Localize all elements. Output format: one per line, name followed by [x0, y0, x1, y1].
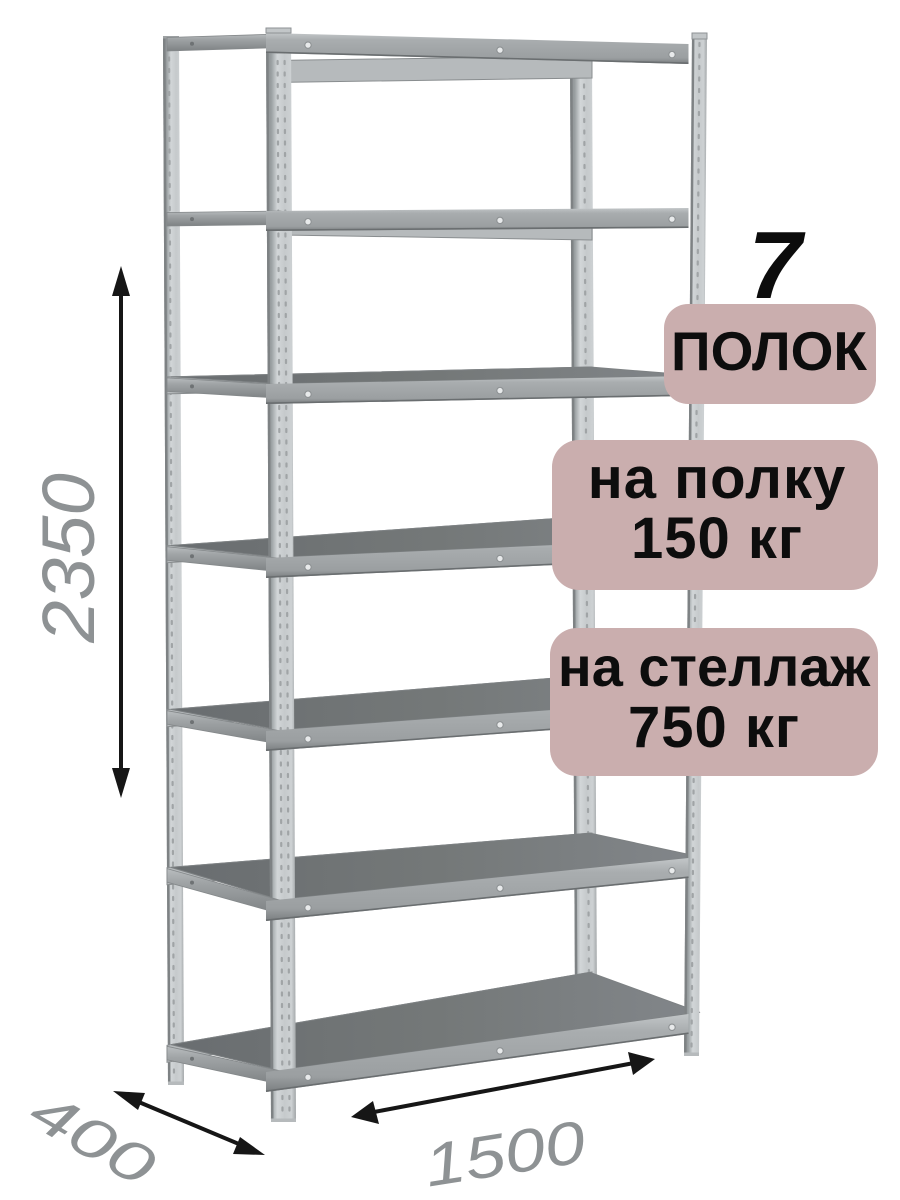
svg-text:750 кг: 750 кг [628, 695, 800, 760]
svg-text:на полку: на полку [588, 446, 847, 511]
svg-text:2350: 2350 [27, 473, 110, 644]
svg-text:7: 7 [748, 212, 806, 319]
svg-text:ПОЛОК: ПОЛОК [671, 320, 867, 382]
svg-text:на стеллаж: на стеллаж [558, 635, 872, 698]
svg-text:150 кг: 150 кг [631, 506, 803, 571]
